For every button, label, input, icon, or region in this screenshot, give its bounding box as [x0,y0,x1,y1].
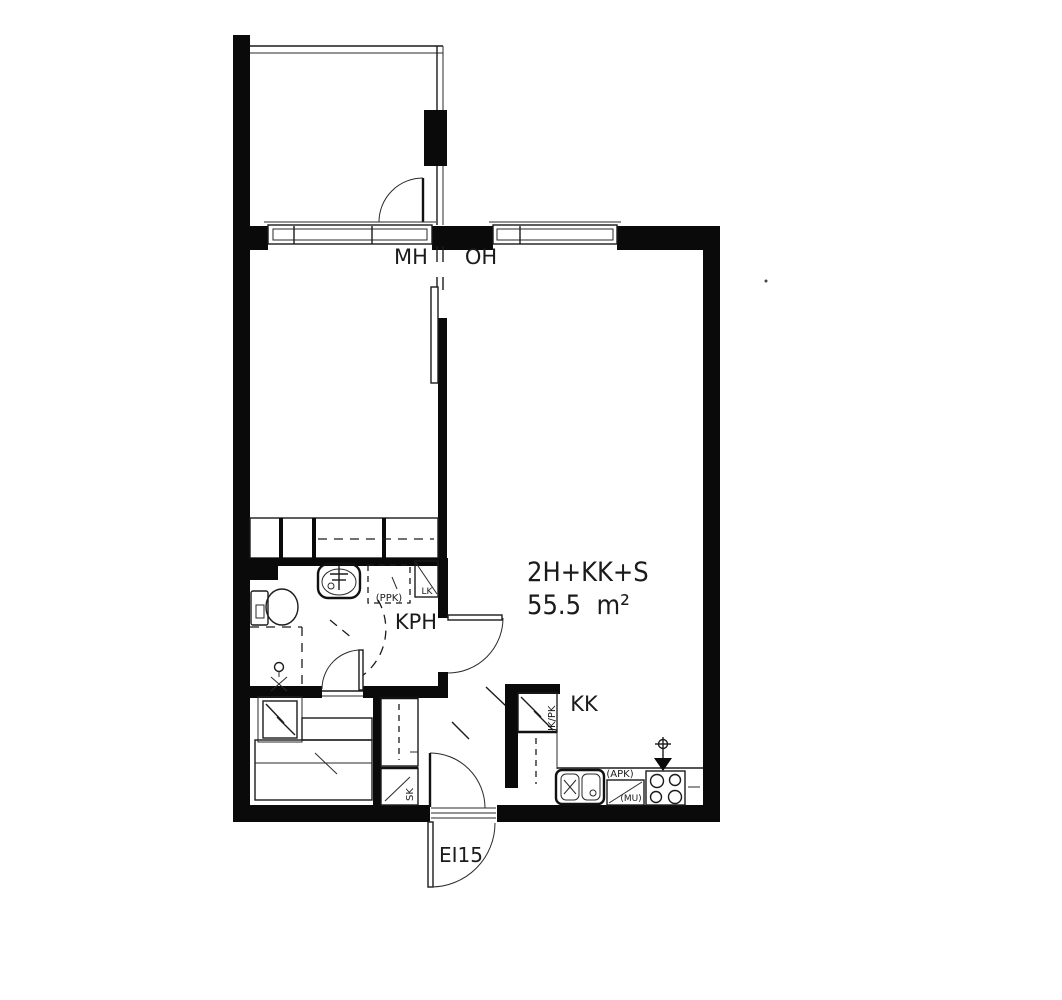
washbasin [318,564,360,598]
apartment-info: 2H+KK+S 55.5 m² [527,557,649,622]
sliding-door-panel [431,287,438,383]
partition-wall [438,318,447,562]
sauna-stove [258,697,302,742]
wall-right [703,226,720,822]
partition-bedroom-living [431,246,447,562]
microwave-reservation-label: (MU) [620,794,641,804]
kitchen-sink [556,770,604,804]
bedroom-label: MH [394,245,428,269]
sauna [255,694,381,808]
bathroom-wall-right-upper [438,558,448,618]
wall-bottom-left [233,805,430,822]
kitchenette [505,684,703,805]
toilet [251,589,298,625]
wall-left [233,35,250,822]
sauna-wall-right [373,694,381,808]
bathroom-label: KPH [395,610,437,634]
apartment-area: 55.5 m² [527,590,630,622]
bedroom-window [264,222,436,244]
shower-area-dashes [250,600,386,686]
stove [646,771,685,805]
scan-speck [765,280,768,283]
wall-top-a [250,226,268,250]
bathroom-door [448,615,503,673]
kitchen-wall-vertical [505,684,518,788]
balcony [250,46,447,225]
living-room-window [489,222,621,244]
washing-machine-reservation-label: (PPK) [376,593,403,604]
bathroom-wall-bottom-left [233,686,322,698]
fridge-freezer-label: JK/PK [547,705,558,732]
apartment-type: 2H+KK+S [527,557,649,589]
linen-closet-label: LK [422,587,434,597]
sauna-door [322,650,363,696]
outer-walls [233,35,720,822]
wall-bottom-right [497,805,720,822]
balcony-wall-block [424,110,447,166]
floor-plan-drawing: MH OH KPH KK EI15 2H+KK+S 55.5 m² (PPK) … [0,0,1062,1000]
sauna-benches [255,718,372,800]
kitchenette-label: KK [570,692,599,716]
living-room-label: OH [465,245,497,269]
bedroom-wardrobes [250,518,438,558]
entrance-door-rating-label: EI15 [439,843,483,867]
open-plan-boundary-marks [452,687,507,739]
dishwasher-reservation-label: (APK) [606,769,633,780]
cleaning-closet-label: SK [405,788,416,801]
cooker-hood-vent [654,737,672,771]
balcony-door [379,178,423,222]
floor-plan-page: MH OH KPH KK EI15 2H+KK+S 55.5 m² (PPK) … [0,0,1062,1000]
